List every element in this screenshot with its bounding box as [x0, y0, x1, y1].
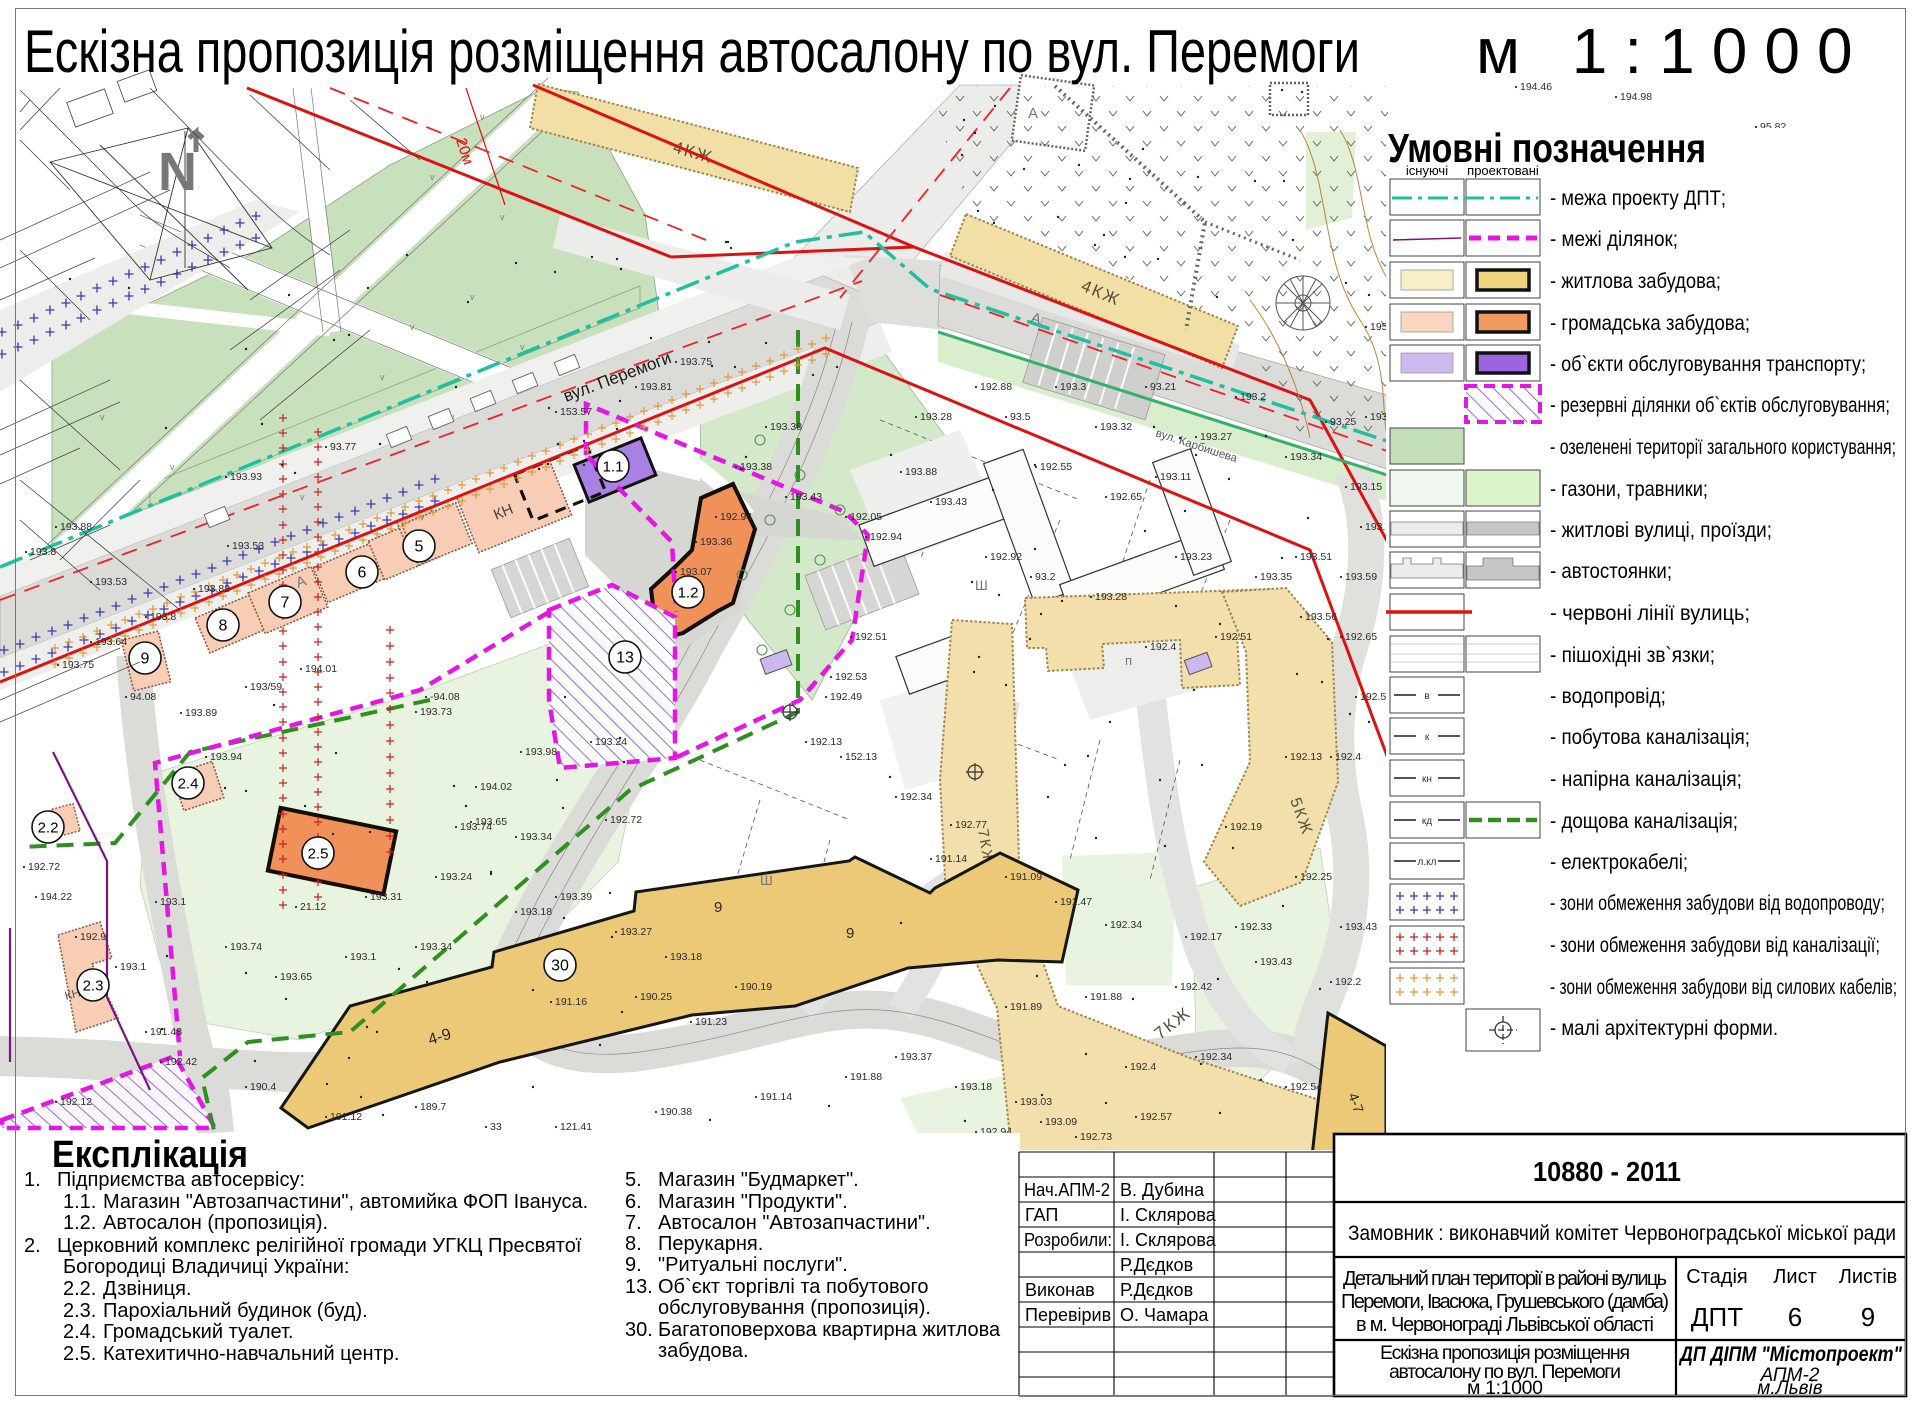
svg-text:193.34: 193.34	[1290, 451, 1322, 463]
svg-text:192.57: 192.57	[1140, 1111, 1172, 1123]
svg-text:193.8: 193.8	[30, 546, 56, 558]
svg-text:192.12: 192.12	[60, 1096, 92, 1108]
svg-text:2.5: 2.5	[308, 846, 329, 863]
svg-text:193.75: 193.75	[680, 356, 712, 368]
svg-text:191.89: 191.89	[1010, 1001, 1042, 1013]
svg-text:- пішохідні зв`язки;: - пішохідні зв`язки;	[1550, 644, 1715, 667]
svg-text:193.43: 193.43	[1260, 956, 1292, 968]
svg-text:193.27: 193.27	[1200, 431, 1232, 443]
svg-text:8: 8	[219, 618, 228, 635]
svg-text:190.25: 190.25	[640, 991, 672, 1003]
svg-text:v: v	[100, 412, 105, 422]
svg-text:93.25: 93.25	[1330, 416, 1356, 428]
svg-text:194.98: 194.98	[1620, 91, 1652, 103]
svg-text:Магазин "Будмаркет".: Магазин "Будмаркет".	[658, 1169, 859, 1191]
svg-text:193.31: 193.31	[370, 891, 402, 903]
svg-text:- об`єкти обслуговування транс: - об`єкти обслуговування транспорту;	[1550, 353, 1866, 376]
svg-text:193.8: 193.8	[150, 611, 176, 623]
svg-text:193.24: 193.24	[440, 871, 472, 883]
svg-text:Багатоповерхова квартирна житл: Багатоповерхова квартирна житлова	[658, 1319, 1001, 1341]
svg-text:192.34: 192.34	[1110, 919, 1142, 931]
svg-text:192.94: 192.94	[870, 531, 902, 543]
svg-text:193.35: 193.35	[1260, 571, 1292, 583]
svg-text:9: 9	[846, 925, 854, 942]
svg-text:існуючі: існуючі	[1406, 163, 1448, 178]
svg-text:Нач.АПМ-2: Нач.АПМ-2	[1024, 1180, 1110, 1200]
svg-text:193.81: 193.81	[640, 381, 672, 393]
svg-text:Магазин "Автозапчастини", авто: Магазин "Автозапчастини", автомийка ФОП …	[103, 1191, 588, 1213]
svg-text:193.88: 193.88	[905, 466, 937, 478]
svg-text:- автостоянки;: - автостоянки;	[1550, 560, 1672, 583]
svg-text:- дощова каналізація;: - дощова каналізація;	[1550, 810, 1738, 833]
svg-text:192.4: 192.4	[1335, 751, 1361, 763]
svg-text:v: v	[520, 342, 525, 352]
svg-text:193/59: 193/59	[250, 681, 282, 693]
svg-text:191.12: 191.12	[330, 1111, 362, 1123]
svg-text:193.18: 193.18	[520, 906, 552, 918]
svg-text:193.34: 193.34	[520, 831, 552, 843]
svg-text:93.5: 93.5	[1010, 411, 1031, 423]
svg-text:в: в	[1424, 691, 1429, 702]
svg-text:193.53: 193.53	[95, 576, 127, 588]
svg-text:193.51: 193.51	[1300, 551, 1332, 563]
svg-text:194.02: 194.02	[480, 781, 512, 793]
svg-text:30.: 30.	[625, 1319, 653, 1341]
svg-text:193.2: 193.2	[1240, 391, 1266, 403]
svg-text:192.65: 192.65	[1345, 631, 1377, 643]
svg-text:13.: 13.	[625, 1276, 653, 1298]
svg-text:193.94: 193.94	[210, 751, 242, 763]
svg-text:- малі архітектурні форми.: - малі архітектурні форми.	[1550, 1017, 1778, 1040]
svg-text:30: 30	[551, 958, 569, 975]
svg-text:проектовані: проектовані	[1467, 163, 1539, 178]
svg-text:1.2.: 1.2.	[63, 1212, 96, 1234]
svg-text:Ескізна пропозиція розміщення: Ескізна пропозиція розміщення автосалону…	[24, 18, 1360, 85]
svg-text:93.21: 93.21	[1150, 381, 1176, 393]
svg-text:193.38: 193.38	[740, 461, 772, 473]
svg-text:1.: 1.	[24, 1169, 41, 1191]
svg-text:- зони обмеження забудови від: - зони обмеження забудови від силових ка…	[1550, 976, 1897, 999]
svg-text:2.: 2.	[24, 1235, 41, 1257]
svg-text:Розробили:: Розробили:	[1024, 1230, 1112, 1250]
svg-text:2.4: 2.4	[178, 776, 199, 793]
svg-text:ДП ДІПМ "Містопроект": ДП ДІПМ "Містопроект"	[1678, 1343, 1903, 1366]
svg-text:- напірна каналізація;: - напірна каналізація;	[1550, 768, 1742, 791]
svg-text:194.01: 194.01	[305, 663, 337, 675]
svg-text:2.2: 2.2	[38, 820, 59, 837]
svg-text:193.37: 193.37	[900, 1051, 932, 1063]
svg-text:152.13: 152.13	[845, 751, 877, 763]
svg-text:Автосалон (пропозиція).: Автосалон (пропозиція).	[103, 1212, 328, 1234]
svg-text:Перукарня.: Перукарня.	[658, 1233, 763, 1255]
svg-text:Ш: Ш	[975, 577, 988, 593]
svg-text:193.1: 193.1	[160, 896, 186, 908]
svg-text:кн: кн	[1422, 774, 1432, 785]
svg-text:м 1:1000: м 1:1000	[1476, 15, 1870, 87]
svg-text:192.54: 192.54	[1290, 1081, 1322, 1093]
svg-text:94.08: 94.08	[130, 691, 156, 703]
svg-text:5.: 5.	[625, 1169, 642, 1191]
svg-text:Р.Дєдков: Р.Дєдков	[1120, 1255, 1193, 1275]
svg-text:193.43: 193.43	[935, 496, 967, 508]
svg-text:-94.08: -94.08	[430, 691, 460, 703]
svg-text:192.13: 192.13	[1290, 751, 1322, 763]
svg-text:193.93: 193.93	[230, 471, 262, 483]
svg-text:Магазин "Продукти".: Магазин "Продукти".	[658, 1191, 848, 1213]
svg-text:193.1: 193.1	[120, 961, 146, 973]
svg-text:193.1: 193.1	[350, 951, 376, 963]
svg-text:193.88: 193.88	[198, 583, 230, 595]
svg-text:193.89: 193.89	[185, 707, 217, 719]
svg-text:193.74: 193.74	[230, 941, 262, 953]
svg-text:- житлові вулиці, проїзди;: - житлові вулиці, проїзди;	[1550, 519, 1772, 542]
svg-text:кд: кд	[1422, 816, 1432, 827]
svg-text:Лист: Лист	[1773, 1266, 1816, 1288]
svg-text:забудова.: забудова.	[658, 1340, 749, 1362]
svg-text:191.14: 191.14	[760, 1091, 792, 1103]
svg-text:192.73: 192.73	[1080, 1131, 1112, 1143]
svg-text:192.72: 192.72	[610, 814, 642, 826]
svg-text:193.3: 193.3	[1060, 381, 1086, 393]
svg-text:193.18: 193.18	[670, 951, 702, 963]
svg-text:Стадія: Стадія	[1686, 1266, 1747, 1288]
svg-text:153.57: 153.57	[560, 406, 592, 418]
svg-text:191.88: 191.88	[1090, 991, 1122, 1003]
svg-text:193.15: 193.15	[1350, 481, 1382, 493]
svg-text:13: 13	[616, 650, 634, 667]
svg-text:191.09: 191.09	[1010, 871, 1042, 883]
svg-text:п: п	[1125, 653, 1132, 668]
svg-text:192.19: 192.19	[1230, 821, 1262, 833]
svg-text:Підприємства автосервісу:: Підприємства автосервісу:	[57, 1169, 305, 1191]
svg-text:193.43: 193.43	[1345, 921, 1377, 933]
svg-text:190.38: 190.38	[660, 1106, 692, 1118]
svg-text:v: v	[420, 512, 425, 522]
svg-text:Р.Дєдков: Р.Дєдков	[1120, 1280, 1193, 1300]
svg-text:2.3.: 2.3.	[63, 1300, 96, 1322]
svg-text:1.2: 1.2	[678, 585, 699, 602]
svg-text:9.: 9.	[625, 1254, 642, 1276]
svg-text:193.24: 193.24	[595, 736, 627, 748]
svg-text:v: v	[170, 462, 175, 472]
svg-text:Детальний план території в рай: Детальний план території в районі вулиць	[1343, 1268, 1667, 1290]
svg-text:- резервні ділянки об`єктів об: - резервні ділянки об`єктів обслуговуван…	[1550, 394, 1890, 417]
svg-text:192.34: 192.34	[900, 791, 932, 803]
svg-text:- межа проекту ДПТ;: - межа проекту ДПТ;	[1550, 187, 1726, 210]
svg-text:Ш: Ш	[760, 872, 773, 888]
svg-text:191.47: 191.47	[1060, 896, 1092, 908]
svg-text:192.65: 192.65	[1110, 491, 1142, 503]
svg-text:v: v	[480, 112, 485, 122]
svg-text:- електрокабелі;: - електрокабелі;	[1550, 851, 1688, 874]
svg-text:В. Дубина: В. Дубина	[1120, 1180, 1205, 1200]
svg-text:6: 6	[358, 565, 367, 582]
svg-text:192.72: 192.72	[28, 861, 60, 873]
svg-text:- газони, травники;: - газони, травники;	[1550, 478, 1708, 501]
svg-text:2.2.: 2.2.	[63, 1278, 96, 1300]
svg-text:193.65: 193.65	[280, 971, 312, 983]
svg-text:190.19: 190.19	[740, 981, 772, 993]
svg-text:7: 7	[281, 595, 290, 612]
svg-text:193.28: 193.28	[1095, 591, 1127, 603]
svg-text:192.42: 192.42	[165, 1056, 197, 1068]
svg-text:Катехитично-навчальний центр.: Катехитично-навчальний центр.	[103, 1343, 399, 1365]
svg-text:192.92: 192.92	[990, 551, 1022, 563]
svg-text:193.07: 193.07	[680, 566, 712, 578]
svg-text:93.2: 93.2	[1035, 571, 1056, 583]
svg-text:8.: 8.	[625, 1233, 642, 1255]
svg-text:- житлова забудова;: - житлова забудова;	[1550, 270, 1721, 293]
svg-text:ГАП: ГАП	[1025, 1205, 1058, 1225]
svg-text:191.14: 191.14	[935, 853, 967, 865]
svg-text:21.12: 21.12	[300, 901, 326, 913]
svg-text:192.88: 192.88	[980, 381, 1012, 393]
svg-text:193.34: 193.34	[420, 941, 452, 953]
svg-text:194.22: 194.22	[40, 891, 72, 903]
svg-text:192.55: 192.55	[1040, 461, 1072, 473]
svg-text:- водопровід;: - водопровід;	[1550, 685, 1666, 708]
svg-text:2.4.: 2.4.	[63, 1321, 96, 1343]
svg-text:192.34: 192.34	[1200, 1051, 1232, 1063]
svg-text:Виконав: Виконав	[1025, 1280, 1095, 1300]
svg-text:193.38: 193.38	[770, 421, 802, 433]
svg-text:193.39: 193.39	[560, 891, 592, 903]
svg-text:192.51: 192.51	[855, 631, 887, 643]
svg-text:193.59: 193.59	[1345, 571, 1377, 583]
svg-text:2.5.: 2.5.	[63, 1343, 96, 1365]
svg-text:193.09: 193.09	[1045, 1116, 1077, 1128]
svg-text:- побутова каналізація;: - побутова каналізація;	[1550, 726, 1750, 749]
svg-text:Перемоги, Івасюка, Грушевськог: Перемоги, Івасюка, Грушевського (дамба)	[1341, 1291, 1669, 1313]
svg-text:193.36: 193.36	[700, 536, 732, 548]
svg-text:Церковний комплекс релігійної: Церковний комплекс релігійної громади УГ…	[57, 1235, 582, 1257]
svg-text:ДПТ: ДПТ	[1691, 1302, 1743, 1332]
svg-text:9: 9	[1861, 1302, 1875, 1332]
svg-text:v: v	[300, 492, 305, 502]
svg-text:І. Склярова: І. Склярова	[1120, 1205, 1217, 1225]
svg-text:192.4: 192.4	[1150, 641, 1176, 653]
svg-text:Автосалон "Автозапчастини".: Автосалон "Автозапчастини".	[658, 1212, 931, 1234]
svg-text:А: А	[1028, 105, 1038, 122]
svg-text:193.75: 193.75	[62, 659, 94, 671]
svg-text:О. Чамара: О. Чамара	[1120, 1305, 1209, 1325]
svg-text:93.77: 93.77	[330, 441, 356, 453]
svg-text:193.32: 193.32	[1100, 421, 1132, 433]
svg-text:Громадський туалет.: Громадський туалет.	[103, 1321, 293, 1343]
svg-text:Дзвіниця.: Дзвіниця.	[103, 1278, 192, 1300]
svg-text:192.49: 192.49	[830, 691, 862, 703]
svg-text:І. Склярова: І. Склярова	[1120, 1230, 1217, 1250]
svg-text:- громадська забудова;: - громадська забудова;	[1550, 312, 1750, 335]
svg-text:191.48: 191.48	[150, 1026, 182, 1038]
svg-text:Перевірив: Перевірив	[1025, 1305, 1111, 1325]
svg-text:192.94: 192.94	[720, 511, 752, 523]
svg-text:1.1: 1.1	[603, 459, 624, 476]
svg-text:Парохіальний будинок (буд).: Парохіальний будинок (буд).	[103, 1300, 368, 1322]
svg-text:v: v	[470, 292, 475, 302]
svg-text:193.53: 193.53	[232, 540, 264, 552]
svg-text:Замовник : виконавчий комітет: Замовник : виконавчий комітет Червоногра…	[1348, 1222, 1896, 1245]
svg-text:193.27: 193.27	[620, 926, 652, 938]
svg-text:193.23: 193.23	[1180, 551, 1212, 563]
svg-text:- зони обмеження забудови від: - зони обмеження забудови від каналізаці…	[1550, 934, 1880, 957]
svg-text:193.64: 193.64	[95, 636, 127, 648]
svg-text:6.: 6.	[625, 1191, 642, 1213]
svg-text:9: 9	[141, 651, 150, 668]
svg-text:Богородиці Владичиці України:: Богородиці Владичиці України:	[63, 1256, 349, 1278]
svg-text:121.41: 121.41	[560, 1121, 592, 1133]
svg-text:191.16: 191.16	[555, 996, 587, 1008]
svg-text:189.7: 189.7	[420, 1101, 446, 1113]
svg-text:192.13: 192.13	[810, 736, 842, 748]
svg-text:192.51: 192.51	[1220, 631, 1252, 643]
svg-text:192.9: 192.9	[80, 931, 106, 943]
svg-text:193.11: 193.11	[1160, 471, 1191, 483]
svg-text:193.98: 193.98	[525, 746, 557, 758]
svg-text:192.25: 192.25	[1300, 871, 1332, 883]
svg-text:192.05: 192.05	[850, 511, 882, 523]
svg-text:v: v	[500, 212, 505, 222]
svg-text:"Ритуальні послуги".: "Ритуальні послуги".	[658, 1254, 848, 1276]
svg-text:Об`єкт торгівлі та побутового: Об`єкт торгівлі та побутового	[658, 1276, 928, 1298]
svg-text:193.73: 193.73	[420, 706, 452, 718]
svg-text:обслуговування (пропозиція).: обслуговування (пропозиція).	[658, 1297, 931, 1319]
svg-text:к: к	[1425, 732, 1430, 743]
svg-text:7.: 7.	[625, 1212, 642, 1234]
svg-text:192.42: 192.42	[1180, 981, 1212, 993]
svg-text:190.4: 190.4	[250, 1081, 276, 1093]
svg-text:192.4: 192.4	[1130, 1061, 1156, 1073]
svg-text:- червоні лінії вулиць;: - червоні лінії вулиць;	[1550, 602, 1750, 625]
svg-text:193.28: 193.28	[920, 411, 952, 423]
svg-text:- зони обмеження забудови від: - зони обмеження забудови від водопровод…	[1550, 892, 1885, 915]
svg-text:33: 33	[490, 1121, 502, 1133]
svg-text:193.88: 193.88	[60, 521, 92, 533]
svg-text:v: v	[410, 322, 415, 332]
svg-text:193.74: 193.74	[460, 821, 492, 833]
svg-text:2.3: 2.3	[83, 978, 104, 995]
svg-text:Листів: Листів	[1839, 1266, 1898, 1288]
svg-text:192.17: 192.17	[1190, 931, 1222, 943]
svg-text:191.23: 191.23	[695, 1016, 727, 1028]
svg-text:- межі ділянок;: - межі ділянок;	[1550, 228, 1678, 251]
svg-text:v: v	[380, 372, 385, 382]
svg-text:л.кл: л.кл	[1418, 857, 1437, 868]
svg-text:193.56: 193.56	[1305, 611, 1337, 623]
svg-text:- озеленені території загально: - озеленені території загального користу…	[1550, 436, 1896, 459]
svg-text:191.88: 191.88	[850, 1071, 882, 1083]
svg-text:192.2: 192.2	[1335, 976, 1361, 988]
svg-text:193.18: 193.18	[960, 1081, 992, 1093]
svg-text:10880 - 2011: 10880 - 2011	[1533, 1156, 1681, 1187]
svg-text:v: v	[430, 172, 435, 182]
svg-text:192.77: 192.77	[955, 819, 987, 831]
svg-text:193.03: 193.03	[1020, 1096, 1052, 1108]
svg-text:192.53: 192.53	[835, 671, 867, 683]
svg-text:5: 5	[415, 539, 424, 556]
svg-text:6: 6	[1788, 1302, 1802, 1332]
svg-text:в м. Червонограді Львівської о: в м. Червонограді Львівської області	[1356, 1314, 1654, 1336]
svg-text:9: 9	[714, 899, 722, 916]
svg-text:1.1.: 1.1.	[63, 1191, 96, 1213]
svg-text:192.33: 192.33	[1240, 921, 1272, 933]
svg-text:193.43: 193.43	[790, 491, 822, 503]
